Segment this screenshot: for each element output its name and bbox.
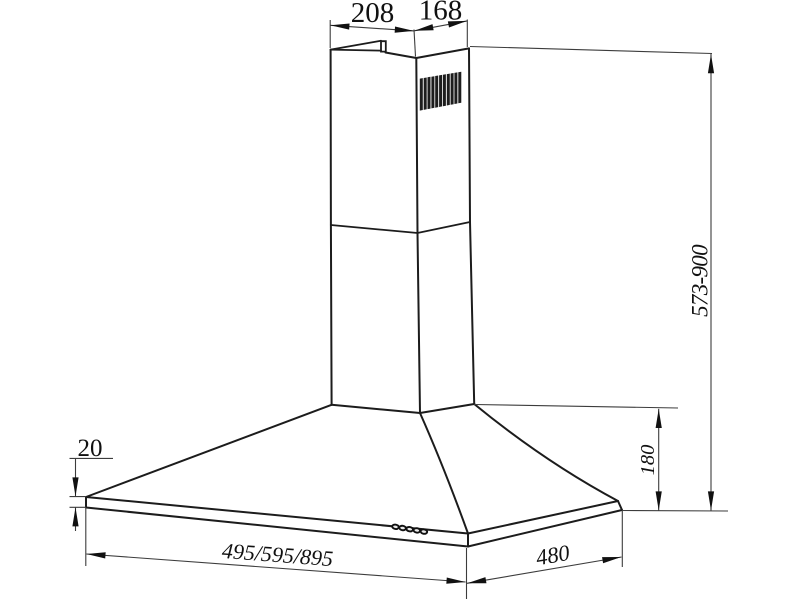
svg-text:168: 168	[419, 0, 463, 27]
svg-text:573-900: 573-900	[688, 244, 713, 317]
svg-text:208: 208	[351, 0, 395, 29]
svg-text:180: 180	[637, 445, 659, 476]
svg-text:20: 20	[78, 435, 103, 462]
